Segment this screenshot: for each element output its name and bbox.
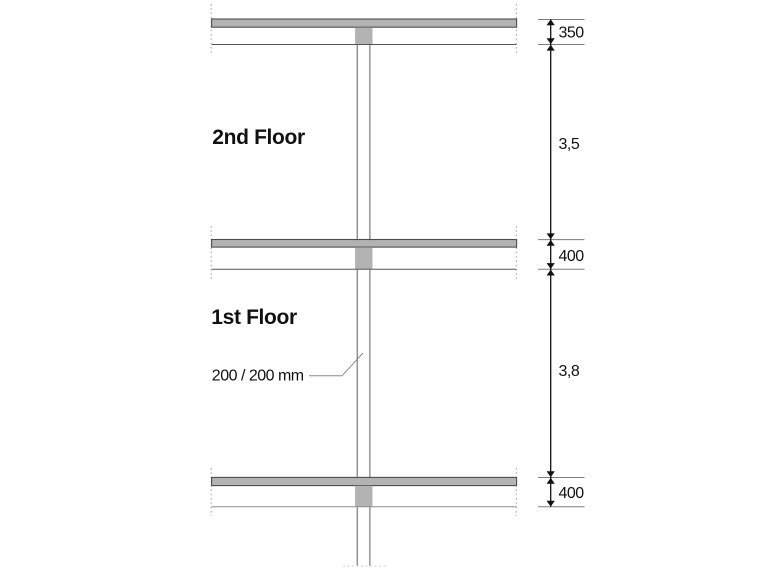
svg-text:3,5: 3,5 — [559, 136, 580, 153]
svg-text:2nd Floor: 2nd Floor — [212, 126, 305, 149]
svg-text:3,8: 3,8 — [559, 363, 580, 380]
svg-text:400: 400 — [559, 248, 585, 265]
svg-text:350: 350 — [559, 25, 585, 42]
svg-text:400: 400 — [559, 485, 585, 502]
svg-text:1st Floor: 1st Floor — [211, 306, 297, 329]
svg-text:200 / 200 mm: 200 / 200 mm — [212, 367, 304, 384]
